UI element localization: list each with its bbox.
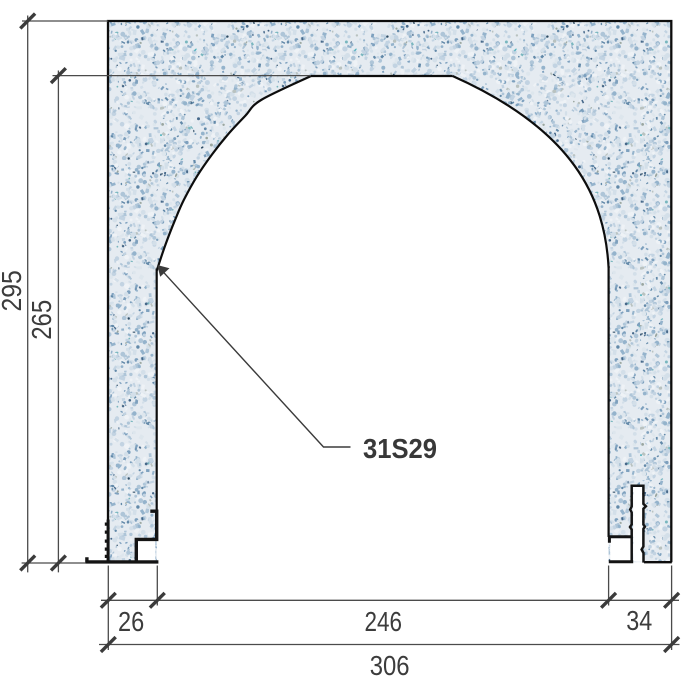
svg-text:31S29: 31S29 — [363, 433, 437, 464]
svg-text:26: 26 — [118, 606, 144, 637]
svg-text:246: 246 — [365, 606, 403, 637]
svg-text:34: 34 — [626, 605, 652, 636]
svg-text:306: 306 — [370, 650, 410, 676]
svg-text:295: 295 — [0, 270, 27, 311]
svg-text:265: 265 — [26, 300, 57, 340]
